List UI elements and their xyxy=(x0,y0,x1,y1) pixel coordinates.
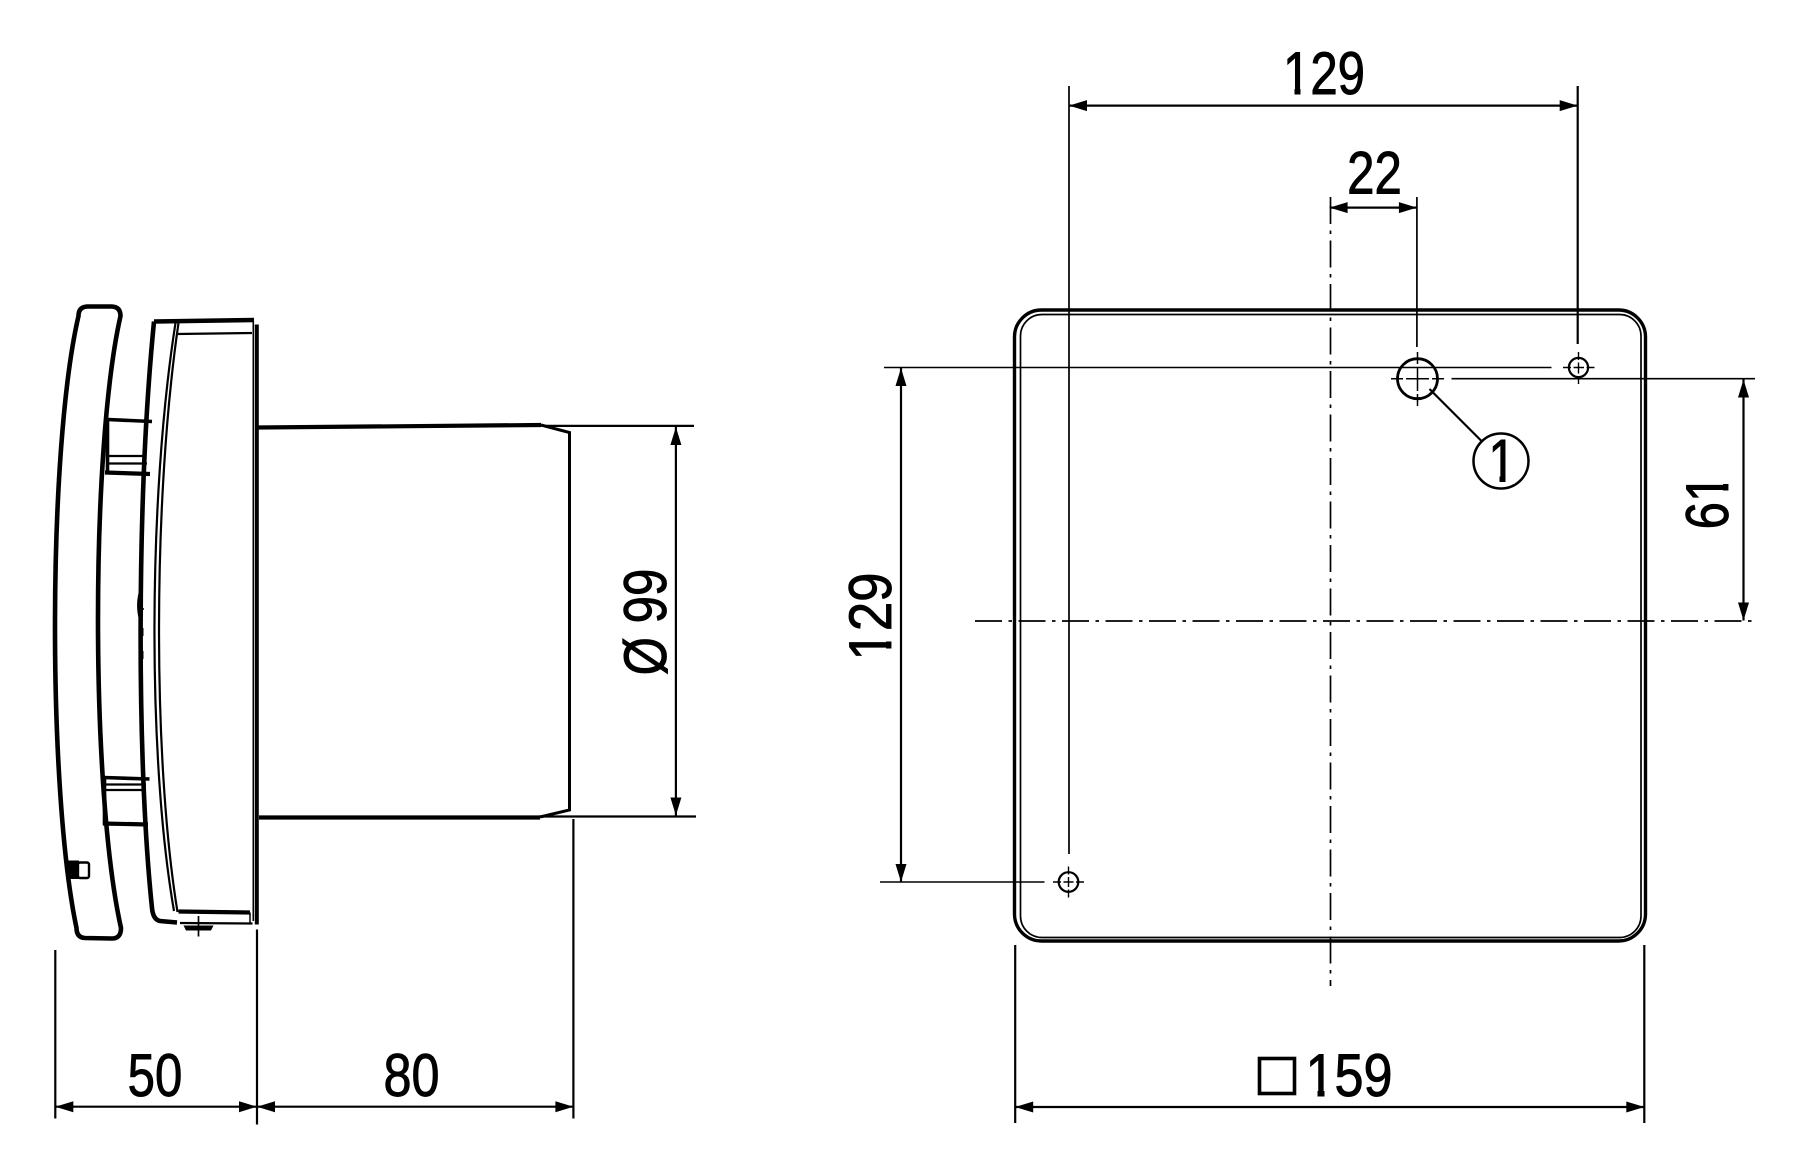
svg-text:61: 61 xyxy=(1673,475,1741,530)
svg-text:80: 80 xyxy=(383,1042,439,1109)
svg-text:50: 50 xyxy=(128,1041,183,1109)
svg-text:129: 129 xyxy=(837,572,904,660)
svg-text:Ø 99: Ø 99 xyxy=(611,569,679,676)
svg-text:1: 1 xyxy=(1488,427,1515,495)
svg-text:129: 129 xyxy=(1283,39,1365,107)
svg-text:159: 159 xyxy=(1305,1042,1392,1109)
svg-text:22: 22 xyxy=(1347,139,1402,207)
